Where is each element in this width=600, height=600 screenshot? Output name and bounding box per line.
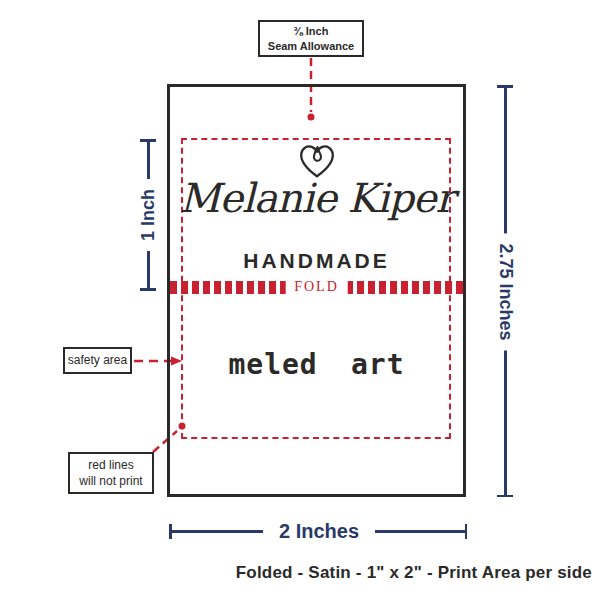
label-outline: Melanie Kiper HANDMADE FOLD meled art xyxy=(167,84,466,497)
brand-subtitle: HANDMADE xyxy=(170,249,463,273)
dim-label-width: 2 Inches xyxy=(263,516,375,547)
label-back-text: meled art xyxy=(170,348,463,381)
dim-label-total-height: 2.75 Inches xyxy=(491,233,520,350)
label-mockup-diagram: ⅜ Inch Seam Allowance Melanie Kiper HAND… xyxy=(0,0,600,600)
red-lines-line2: will not print xyxy=(79,473,142,489)
dim-label-print-height: 1 Inch xyxy=(134,179,163,251)
product-caption: Folded - Satin - 1" x 2" - Print Area pe… xyxy=(236,563,592,583)
safety-area-callout: safety area xyxy=(63,347,132,374)
brand-name: Melanie Kiper xyxy=(170,175,463,221)
red-lines-callout: red lines will not print xyxy=(68,452,154,494)
red-lines-line1: red lines xyxy=(88,457,133,473)
fold-label: FOLD xyxy=(285,278,348,297)
safety-area-label: safety area xyxy=(68,352,127,368)
